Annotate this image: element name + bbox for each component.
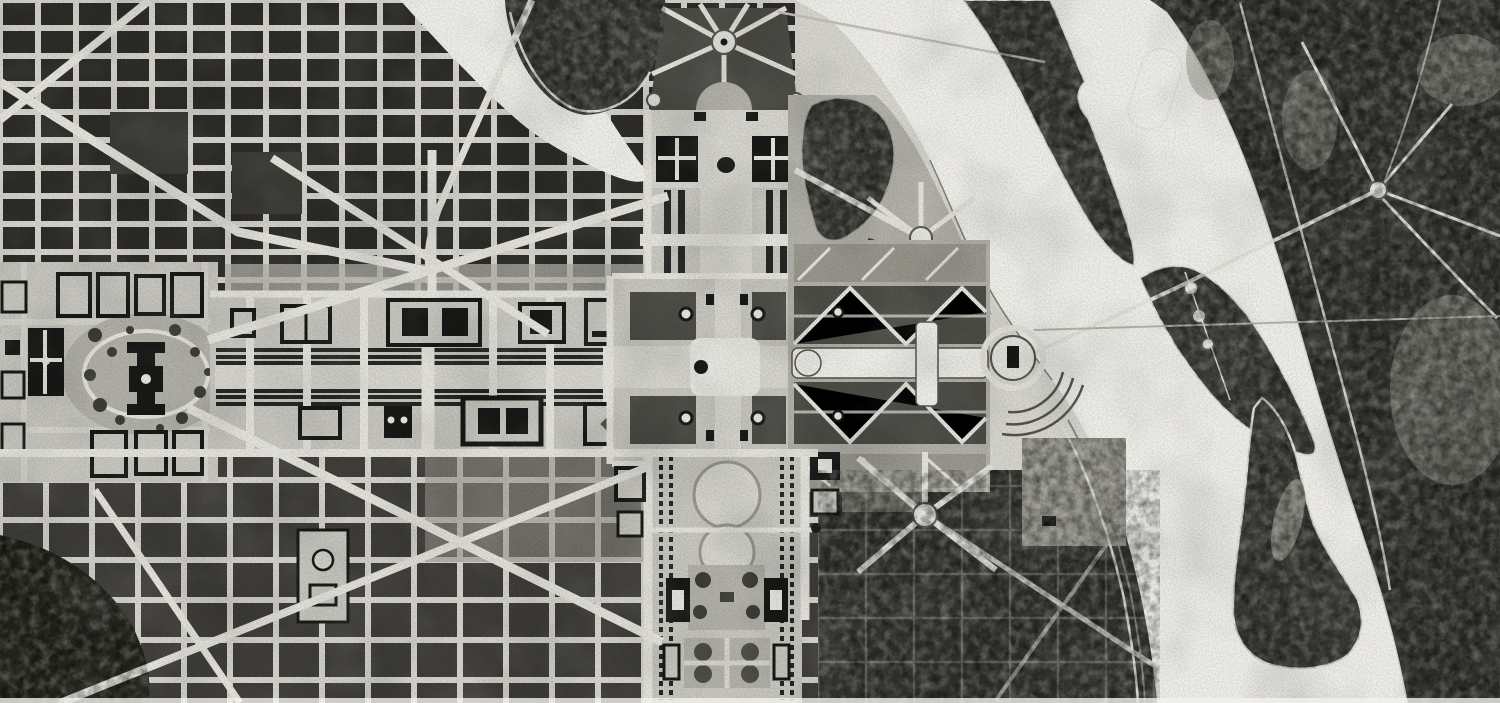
plan-canvas xyxy=(0,0,1500,703)
white-house xyxy=(717,157,735,173)
halftone-city-plan xyxy=(0,0,1500,703)
round-pool-upper xyxy=(694,462,760,528)
washington-monument xyxy=(694,360,708,374)
tree-park-square xyxy=(1022,438,1126,546)
capitol-building xyxy=(127,342,165,415)
presidents-axis-garden xyxy=(640,188,812,280)
washington-monument-garden xyxy=(610,276,790,464)
round-basin xyxy=(795,350,821,376)
memorial-building xyxy=(1007,346,1019,368)
fan-circle-monument xyxy=(721,39,728,46)
white-house-compound xyxy=(640,4,812,296)
library-building xyxy=(28,328,64,396)
